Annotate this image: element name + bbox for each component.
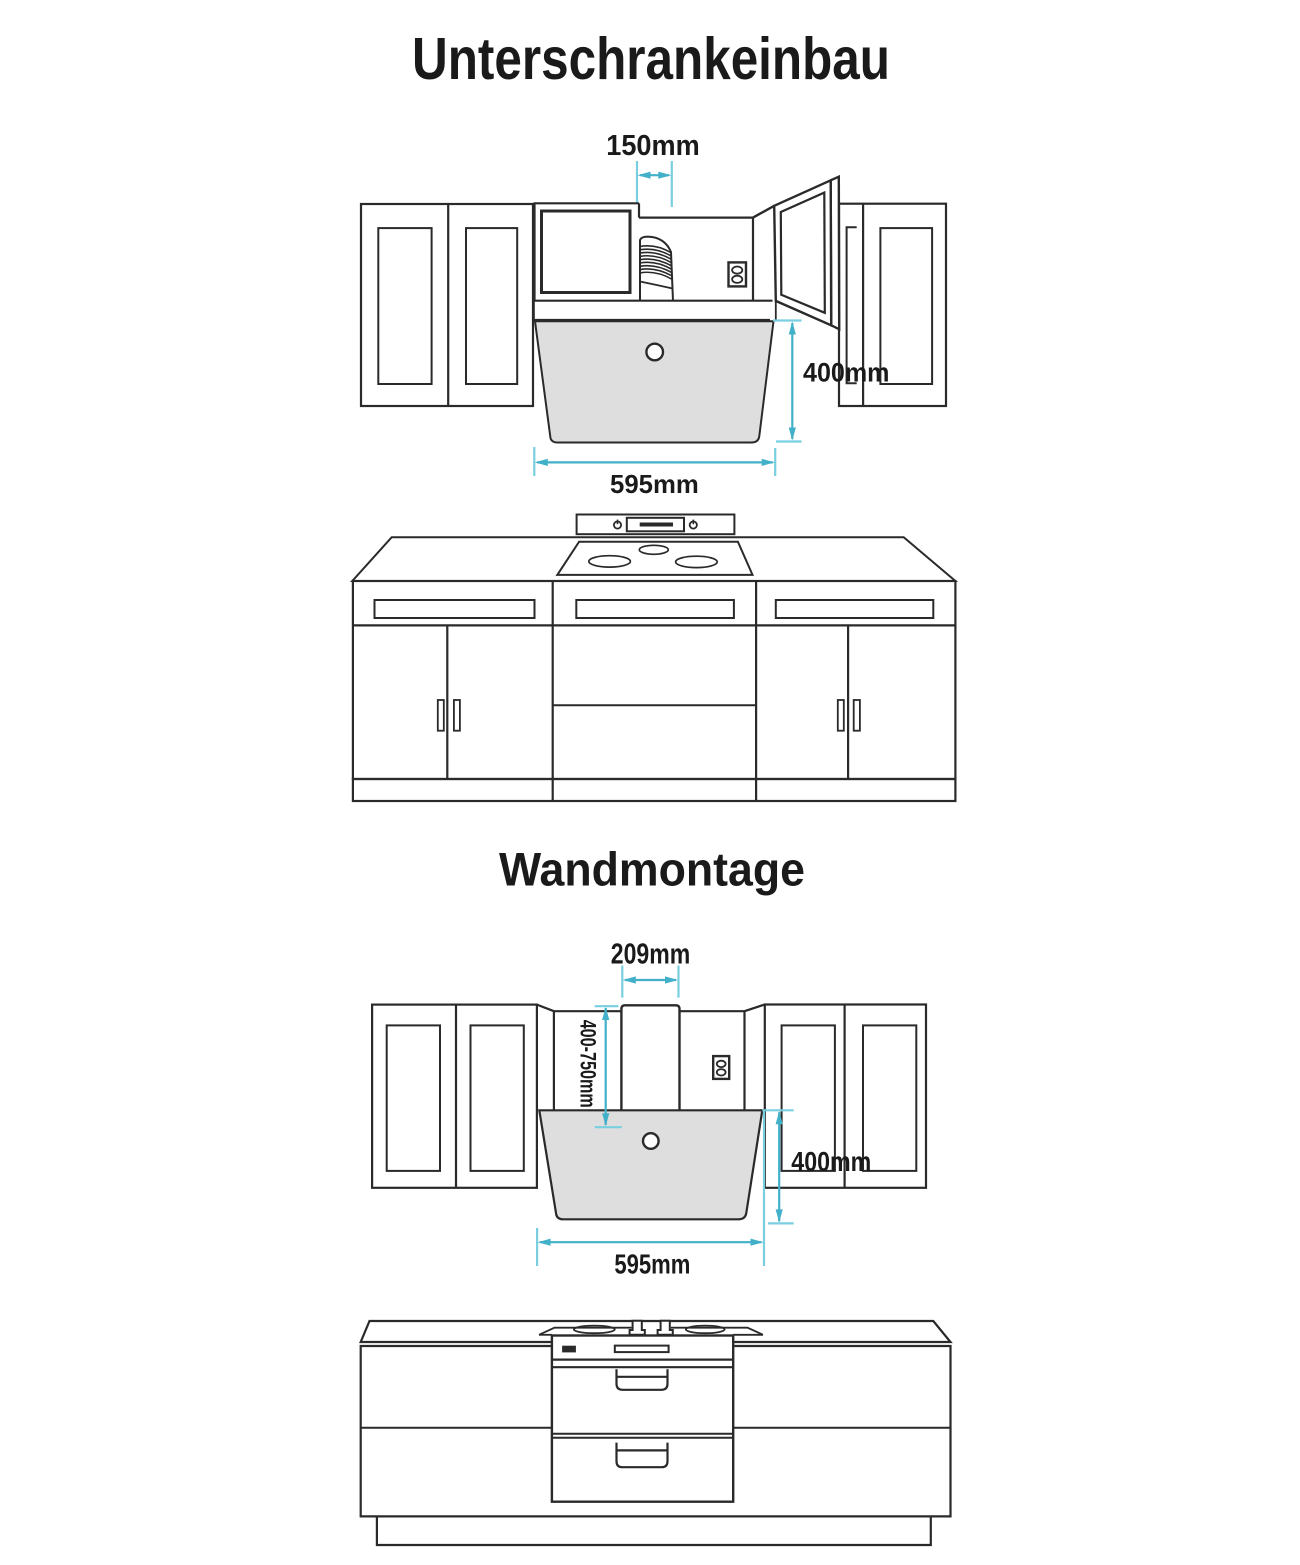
svg-text:400-750mm: 400-750mm <box>576 1020 601 1108</box>
svg-text:595mm: 595mm <box>610 469 699 499</box>
svg-text:595mm: 595mm <box>614 1249 690 1280</box>
svg-text:400mm: 400mm <box>791 1146 871 1177</box>
svg-text:400mm: 400mm <box>803 357 890 387</box>
svg-text:150mm: 150mm <box>606 130 700 162</box>
svg-text:Unterschrankeinbau: Unterschrankeinbau <box>412 26 890 92</box>
svg-text:Wandmontage: Wandmontage <box>499 843 805 896</box>
